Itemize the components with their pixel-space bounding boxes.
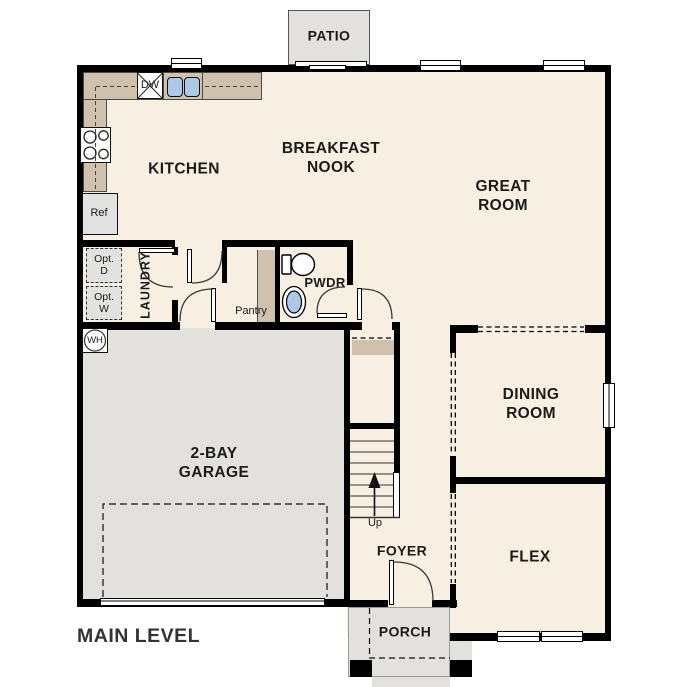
stair-rail [393, 472, 400, 518]
floor-plan: PATIO KITCHEN BREAKFAST NOOK GREAT ROOM … [0, 0, 687, 687]
sink-basin-right [184, 77, 200, 97]
wall-powder-left [275, 247, 280, 322]
garage-entry-door [211, 288, 216, 322]
wall-laundry-right-b [172, 300, 178, 322]
flex-window-2 [541, 631, 583, 642]
room-label-garage: 2-BAY GARAGE [179, 444, 249, 482]
room-label-powder: PWDR [304, 275, 345, 291]
wall-powder-right [347, 247, 353, 285]
hall-foyer-door [357, 288, 362, 320]
page-title: MAIN LEVEL [77, 624, 200, 648]
label-stairs-up: Up [368, 517, 382, 531]
label-refrigerator: Ref [90, 207, 107, 221]
front-door [389, 560, 394, 605]
kitchen-hall-door [187, 249, 192, 283]
wall-foyer-east-b [450, 456, 456, 493]
kitchen-window [171, 58, 202, 69]
wall-garage-top-c [392, 322, 400, 330]
room-label-dining-room: DINING ROOM [503, 385, 560, 423]
great-room-window-1 [420, 60, 461, 71]
label-opt-dryer: Opt. D [94, 253, 114, 277]
porch-post-left [350, 660, 372, 677]
wall-garage-right [344, 330, 350, 607]
wall-garage-top-b [215, 322, 362, 330]
wall-right [605, 65, 611, 641]
room-label-breakfast-nook: BREAKFAST NOOK [282, 139, 380, 177]
dining-window [603, 383, 615, 428]
porch-post-right [450, 660, 472, 677]
range-box [80, 127, 111, 163]
flex-window-1 [497, 631, 540, 642]
wall-mid-a [77, 240, 175, 247]
porch-walkway [372, 677, 450, 687]
room-label-kitchen: KITCHEN [148, 159, 220, 178]
room-label-pantry: Pantry [235, 305, 267, 319]
room-label-flex: FLEX [509, 547, 550, 566]
stair-soffit [352, 340, 398, 355]
wall-dining-flex [450, 477, 611, 484]
room-label-laundry: LAUNDRY [138, 251, 154, 319]
wall-pantry-left [222, 247, 227, 283]
wall-foyer-bottom-b [432, 600, 457, 607]
wall-stair-break [350, 423, 400, 429]
wall-foyer-bottom-a [344, 600, 388, 607]
room-label-porch: PORCH [379, 623, 432, 640]
main-floor-lower [347, 333, 608, 638]
sink-basin-left [167, 77, 183, 97]
patio-slider-panel-2 [309, 65, 346, 70]
room-label-foyer: FOYER [377, 542, 427, 559]
label-opt-washer: Opt. W [94, 291, 114, 315]
wall-foyer-east-a [450, 325, 456, 353]
room-label-patio: PATIO [308, 27, 351, 44]
label-dishwasher: DW [141, 79, 159, 93]
wall-dining-top-b [585, 325, 611, 333]
powder-door [317, 313, 347, 318]
wall-mid-b [222, 240, 353, 247]
great-room-window-2 [543, 60, 585, 71]
label-water-heater: WH [87, 335, 103, 347]
room-label-great-room: GREAT ROOM [475, 177, 530, 215]
garage-overhead-door [100, 598, 325, 606]
